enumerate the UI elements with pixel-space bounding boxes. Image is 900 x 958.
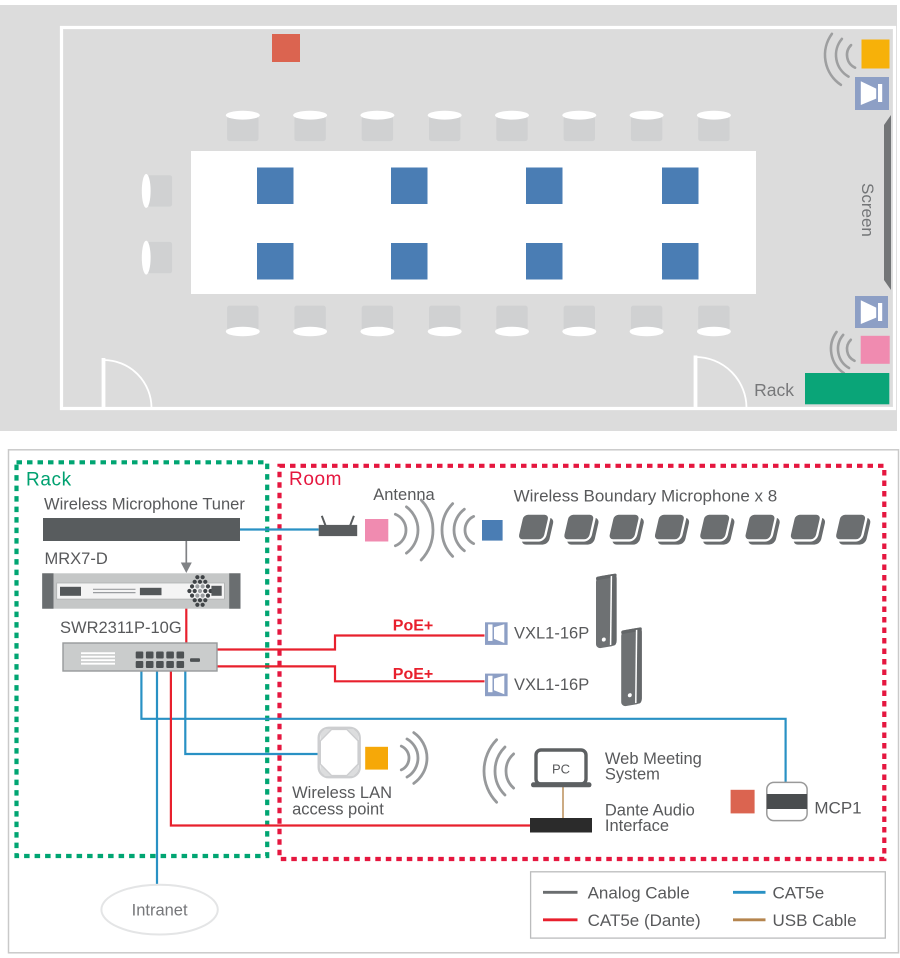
svg-text:Rack: Rack xyxy=(754,380,794,400)
svg-text:PoE+: PoE+ xyxy=(393,618,433,635)
svg-text:Rack: Rack xyxy=(26,470,72,491)
svg-text:Wireless Boundary Microphone x: Wireless Boundary Microphone x 8 xyxy=(514,487,778,506)
svg-text:Wireless LAN: Wireless LAN xyxy=(292,784,392,802)
svg-text:VXL1-16P: VXL1-16P xyxy=(514,676,589,694)
svg-text:Antenna: Antenna xyxy=(373,486,435,504)
svg-text:Screen: Screen xyxy=(858,183,877,237)
svg-text:MCP1: MCP1 xyxy=(814,799,861,818)
svg-text:Intranet: Intranet xyxy=(132,902,188,920)
svg-text:PC: PC xyxy=(552,762,570,777)
svg-text:CAT5e (Dante): CAT5e (Dante) xyxy=(588,911,701,930)
svg-text:access point: access point xyxy=(292,801,384,819)
svg-text:PoE+: PoE+ xyxy=(393,666,433,683)
svg-text:Room: Room xyxy=(289,469,342,490)
svg-text:Analog Cable: Analog Cable xyxy=(588,884,690,903)
svg-text:VXL1-16P: VXL1-16P xyxy=(514,625,589,643)
svg-text:System: System xyxy=(605,766,660,784)
svg-text:SWR2311P-10G: SWR2311P-10G xyxy=(60,619,182,637)
svg-text:MRX7-D: MRX7-D xyxy=(45,550,108,568)
svg-text:Wireless Microphone Tuner: Wireless Microphone Tuner xyxy=(44,496,245,514)
svg-text:Interface: Interface xyxy=(605,817,669,835)
svg-text:CAT5e: CAT5e xyxy=(773,884,825,903)
svg-text:USB Cable: USB Cable xyxy=(773,911,857,930)
